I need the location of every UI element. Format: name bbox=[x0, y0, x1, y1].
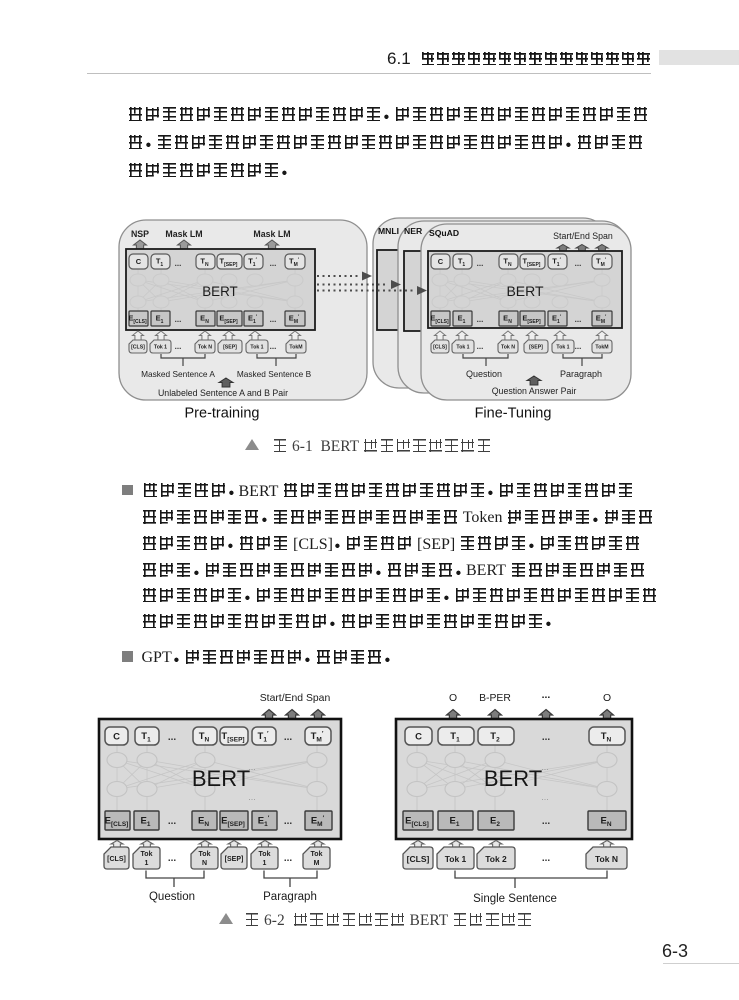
svg-text:...: ... bbox=[168, 732, 177, 743]
svg-text:Paragraph: Paragraph bbox=[263, 891, 317, 903]
svg-text:...: ... bbox=[284, 853, 293, 864]
svg-text:Tok 1: Tok 1 bbox=[445, 854, 467, 864]
svg-text:1: 1 bbox=[145, 860, 149, 867]
svg-text:...: ... bbox=[541, 762, 549, 772]
svg-text:...: ... bbox=[168, 853, 177, 864]
svg-text:O: O bbox=[449, 693, 457, 704]
svg-text:...: ... bbox=[284, 816, 293, 827]
svg-text:M: M bbox=[314, 860, 320, 867]
svg-text:Tok: Tok bbox=[141, 851, 153, 858]
svg-text:Tok: Tok bbox=[311, 851, 323, 858]
svg-text:Start/End Span: Start/End Span bbox=[260, 693, 331, 704]
svg-text:...: ... bbox=[541, 792, 549, 802]
svg-text:C: C bbox=[415, 732, 422, 743]
svg-text:[CLS]: [CLS] bbox=[107, 856, 126, 863]
svg-text:Tok 2: Tok 2 bbox=[485, 854, 507, 864]
svg-text:Single Sentence: Single Sentence bbox=[473, 893, 557, 905]
svg-text:...: ... bbox=[284, 732, 293, 743]
svg-text:N: N bbox=[202, 860, 207, 867]
svg-text:...: ... bbox=[248, 792, 256, 802]
svg-text:...: ... bbox=[168, 816, 177, 827]
svg-text:Question: Question bbox=[149, 891, 195, 903]
svg-text:...: ... bbox=[542, 853, 551, 864]
svg-text:[CLS]: [CLS] bbox=[407, 854, 430, 864]
svg-text:Tok: Tok bbox=[199, 851, 211, 858]
svg-text:BERT: BERT bbox=[484, 766, 542, 791]
svg-text:Tok: Tok bbox=[259, 851, 271, 858]
svg-text:[SEP]: [SEP] bbox=[225, 856, 244, 863]
svg-text:BERT: BERT bbox=[192, 766, 250, 791]
svg-text:...: ... bbox=[542, 690, 551, 701]
svg-text:Tok N: Tok N bbox=[595, 854, 618, 864]
svg-text:C: C bbox=[113, 732, 120, 743]
svg-text:...: ... bbox=[542, 816, 551, 827]
svg-text:O: O bbox=[603, 693, 611, 704]
svg-text:B-PER: B-PER bbox=[479, 693, 511, 704]
svg-text:1: 1 bbox=[263, 860, 267, 867]
svg-text:...: ... bbox=[542, 732, 551, 743]
